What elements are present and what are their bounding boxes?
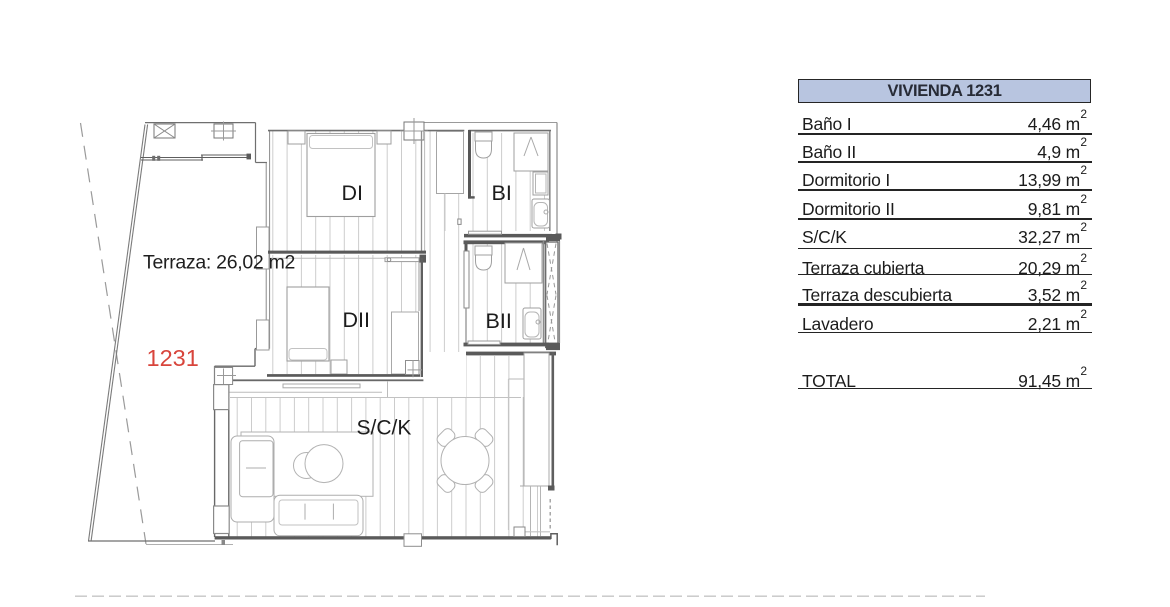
svg-text:1231: 1231 <box>147 345 199 371</box>
svg-text:DII: DII <box>343 308 370 332</box>
svg-text:BI: BI <box>492 181 512 205</box>
svg-text:S/C/K: S/C/K <box>357 417 412 440</box>
svg-text:Terraza: 26,02 m2: Terraza: 26,02 m2 <box>143 252 295 274</box>
svg-text:DI: DI <box>342 181 364 205</box>
svg-text:BII: BII <box>486 309 512 333</box>
